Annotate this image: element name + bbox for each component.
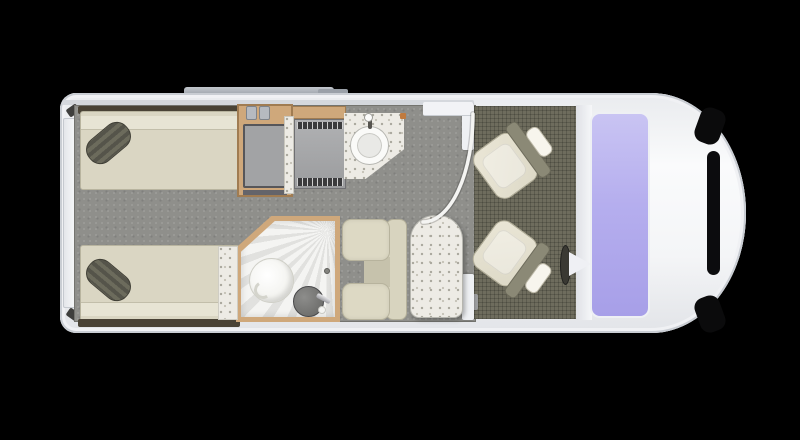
front-grille (707, 151, 720, 275)
hob-hinge-strip (297, 122, 343, 129)
wall-hook (400, 113, 406, 119)
soap-dish (318, 306, 326, 314)
pedestal-table (410, 215, 463, 318)
round-sink (351, 127, 388, 164)
bench-cushion-top (342, 219, 390, 261)
steering-column (569, 252, 591, 276)
cabinet-hinge (246, 106, 257, 120)
shower-drain (324, 268, 330, 274)
wardrobe-door (243, 124, 287, 188)
entry-doorway (423, 102, 473, 116)
cabinet-hinge (259, 106, 270, 120)
kitchen-back-panel (292, 106, 346, 119)
b-pillar-bottom (462, 274, 474, 320)
bed-bolster (81, 302, 237, 316)
bumper-corner-bottom (692, 293, 729, 336)
toilet (249, 258, 294, 303)
worktop-sliver (284, 116, 294, 194)
bed-bottom-wall-trim (78, 319, 240, 327)
floorplan-canvas (0, 0, 800, 440)
sink-tap-knob (364, 113, 373, 122)
washroom-threshold (218, 246, 238, 320)
wardrobe-rail (243, 190, 287, 195)
bench-cushion-bottom (342, 283, 390, 320)
hob-unit (294, 119, 346, 189)
windscreen (590, 112, 650, 318)
hob-control-strip (297, 178, 343, 186)
